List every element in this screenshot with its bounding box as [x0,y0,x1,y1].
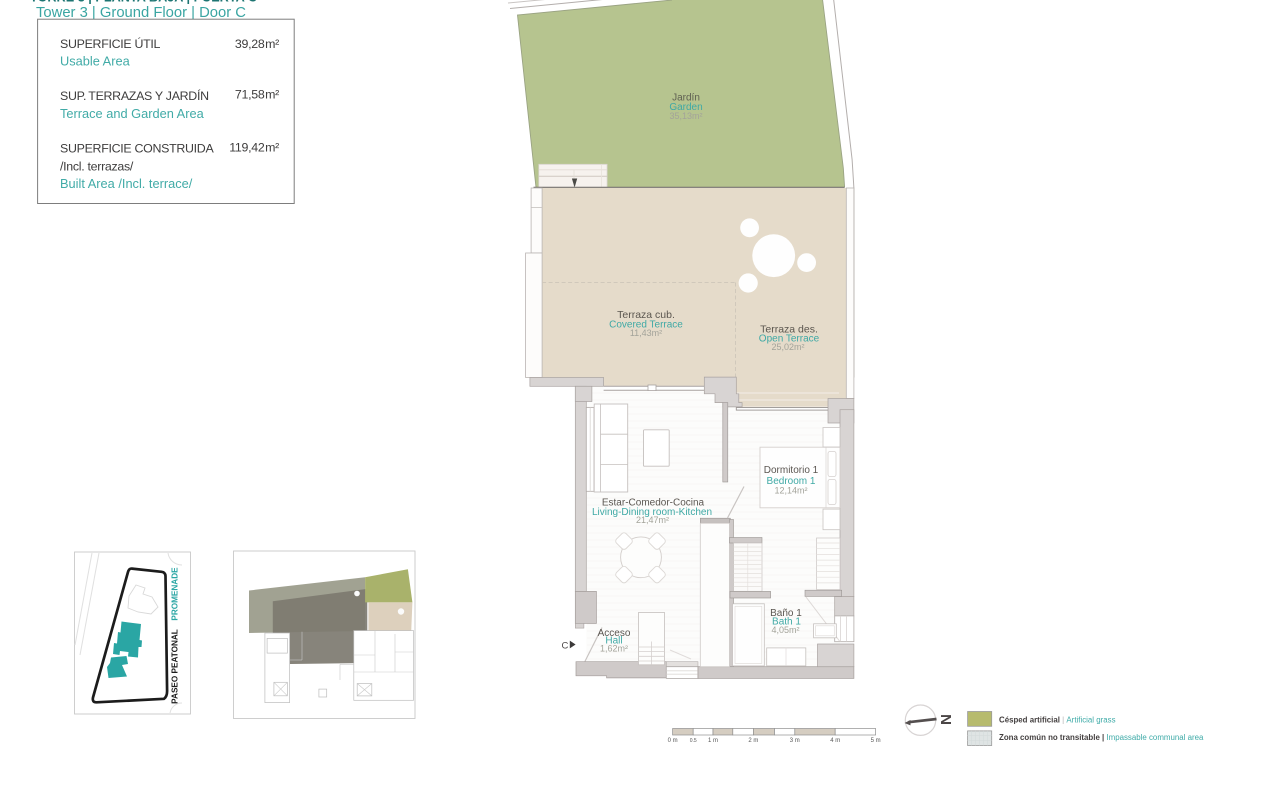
svg-text:Usable Area: Usable Area [60,54,131,69]
svg-text:Tower 3 | Ground Floor | Door: Tower 3 | Ground Floor | Door C [36,5,246,21]
svg-text:SUPERFICIE ÚTIL: SUPERFICIE ÚTIL [60,36,161,51]
svg-text:Built Area /Incl. terrace/: Built Area /Incl. terrace/ [60,176,193,191]
svg-text:21,47m²: 21,47m² [636,515,669,525]
svg-text:12,14m²: 12,14m² [774,486,807,496]
svg-text:119,42 m²: 119,42 m² [229,141,279,155]
svg-text:Terrace and Garden Area: Terrace and Garden Area [60,106,205,121]
svg-text:35,13m²: 35,13m² [669,111,702,121]
svg-text:4,05m²: 4,05m² [771,625,799,635]
svg-text:1,62m²: 1,62m² [600,644,628,654]
svg-text:C: C [562,640,569,651]
svg-text:0 m: 0 m [668,738,678,744]
svg-text:PASEO PEATONAL: PASEO PEATONAL [171,629,180,704]
svg-text:2 m: 2 m [748,738,758,744]
svg-text:4 m: 4 m [830,738,840,744]
svg-text:TORRE 3 | PLANTA BAJA | PUERTA: TORRE 3 | PLANTA BAJA | PUERTA C [30,0,257,5]
svg-text:0.5: 0.5 [690,738,697,744]
svg-text:11,43m²: 11,43m² [630,328,662,338]
svg-text:Césped artificial | Artificial: Césped artificial | Artificial grass [999,716,1116,725]
svg-text:5 m: 5 m [871,738,881,744]
svg-text:71,58 m²: 71,58 m² [235,88,279,102]
svg-text:/Incl. terrazas/: /Incl. terrazas/ [60,160,134,174]
svg-text:3 m: 3 m [790,738,800,744]
svg-text:N: N [937,714,954,725]
svg-text:PROMENADE: PROMENADE [171,567,180,621]
svg-text:Dormitorio 1: Dormitorio 1 [764,465,819,476]
svg-text:SUPERFICIE CONSTRUIDA: SUPERFICIE CONSTRUIDA [60,142,214,156]
svg-text:1 m: 1 m [708,738,718,744]
svg-text:39,28 m²: 39,28 m² [235,37,279,51]
svg-text:25,02m²: 25,02m² [771,342,804,352]
svg-text:SUP. TERRAZAS Y JARDÍN: SUP. TERRAZAS Y JARDÍN [60,88,209,103]
svg-text:Zona común no transitable | Im: Zona común no transitable | Impassable c… [999,733,1204,742]
